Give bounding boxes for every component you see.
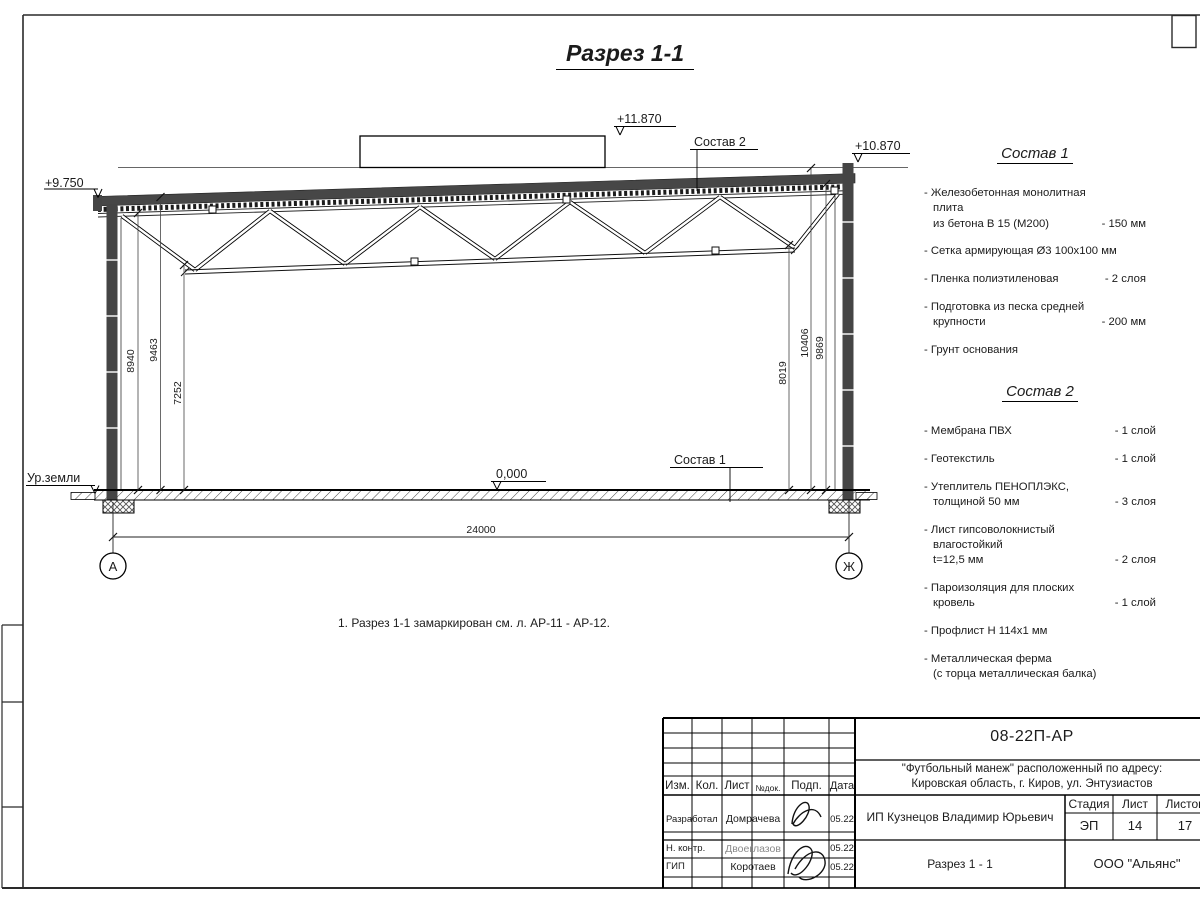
stamp-stage-value: ЭП [1065,818,1113,833]
sostav2-item: - Профлист Н 114х1 мм [924,624,1156,639]
item-name: - Пленка полиэтиленовая [924,272,1058,287]
axis-right-label: Ж [843,559,855,574]
sostav1-title: Состав 1 [924,145,1146,162]
item-value: - 3 слоя [1115,495,1156,510]
stamp-name-ncontr: Двоеглазов [722,843,784,855]
item-name: - Пароизоляция для плоских кровель [924,581,1109,612]
stamp-col-dok: №док. [752,783,784,793]
dim-right-1: 8019 [777,361,789,385]
stamp-role-developer: Разработал [666,814,718,825]
stamp-client: ИП Кузнецов Владимир Юрьевич [857,810,1063,824]
signature-1 [792,802,821,825]
stamp-sheets-value: 17 [1157,818,1200,833]
sostav2-title: Состав 2 [924,383,1156,400]
item-name: - Лист гипсоволокнистый влагостойкий t=1… [924,523,1109,569]
item-name: - Грунт основания [924,343,1018,358]
leader-lines [670,150,763,503]
stamp-col-data: Дата [829,780,855,792]
item-value: - 2 слоя [1105,272,1146,287]
leader-sostav2-label: Состав 2 [694,135,746,149]
truss-bottom-chord [181,246,799,276]
sostav1-item: - Грунт основания [924,343,1146,358]
signature-2 [788,846,825,879]
sostav1-item: - Сетка армирующая Ø3 100x100 мм [924,244,1146,259]
item-name: - Профлист Н 114х1 мм [924,624,1047,639]
drawing-sheet: +9.750 +11.870 +10.870 0,000 Ур.земли Со… [0,0,1200,900]
stamp-name-developer: Домрачева [722,813,784,825]
sostav2-item: - Геотекстиль- 1 слой [924,452,1156,467]
item-name: - Металлическая ферма (с торца металличе… [924,652,1096,683]
item-name: - Геотекстиль [924,452,997,467]
item-value: - 1 слой [1115,596,1156,611]
stamp-col-izm: Изм. [663,780,692,792]
dim-ticks [109,164,853,541]
stamp-date-gip: 05.22 [829,862,855,873]
stamp-col-podp: Подп. [784,780,829,792]
floor-slab [71,490,877,513]
stamp-sheets-label: Листов [1157,797,1200,811]
stamp-company: ООО "Альянс" [1067,856,1200,871]
item-value: - 2 слоя [1115,553,1156,568]
sostav2-item: - Металлическая ферма (с торца металличе… [924,652,1156,683]
stamp-role-ncontr: Н. контр. [666,843,705,854]
sostav1-panel: Состав 1 - Железобетонная монолитная пли… [924,145,1146,358]
item-value: - 1 слой [1115,424,1156,439]
dim-left-1: 8940 [125,349,137,373]
stamp-date-developer: 05.22 [829,814,855,825]
dim-right-2: 10406 [799,328,811,357]
item-value: - 200 мм [1102,315,1146,330]
item-name: - Сетка армирующая Ø3 100x100 мм [924,244,1117,259]
elevation-roof-right-label: +10.870 [855,139,901,153]
sostav1-item: - Подготовка из песка средней крупности-… [924,300,1146,331]
stamp-date-ncontr: 05.22 [829,843,855,854]
dim-left-3: 7252 [172,381,184,405]
rooftop-unit [360,136,605,168]
sostav2-item: - Лист гипсоволокнистый влагостойкий t=1… [924,523,1156,569]
elevation-floor-label: 0,000 [496,467,527,481]
elevation-parapet-label: +11.870 [617,112,662,126]
axis-left-label: А [109,559,118,574]
stamp-col-list: Лист [722,780,752,792]
dim-right-3: 9869 [814,336,826,360]
sostav1-item: - Пленка полиэтиленовая- 2 слоя [924,272,1146,287]
stamp-doc-number: 08-22П-АР [857,728,1200,746]
stamp-stage-label: Стадия [1065,797,1113,811]
item-name: - Железобетонная монолитная плита из бет… [924,186,1096,232]
signature-strokes [788,802,825,879]
item-value: - 1 слой [1115,452,1156,467]
item-name: - Подготовка из песка средней крупности [924,300,1084,331]
dim-left-2: 9463 [148,338,160,362]
dim-span: 24000 [466,524,495,536]
note-text: 1. Разрез 1-1 замаркирован см. л. АР-11 … [338,616,610,630]
sostav2-item: - Мембрана ПВХ- 1 слой [924,424,1156,439]
elevation-roof-left-label: +9.750 [45,176,84,190]
vertical-dim-lines [138,168,826,490]
stamp-col-kol: Кол. [692,780,722,792]
stamp-role-gip: ГИП [666,861,685,872]
item-value: - 150 мм [1102,217,1146,232]
leader-sostav1-label: Состав 1 [674,453,726,467]
stamp-name-gip: Коротаев [722,861,784,873]
stamp-sheet-value: 14 [1113,818,1157,833]
sostav2-item: - Пароизоляция для плоских кровель- 1 сл… [924,581,1156,612]
stamp-project: "Футбольный манеж" расположенный по адре… [857,762,1200,792]
sostav2-panel: Состав 2 - Мембрана ПВХ- 1 слой - Геотек… [924,383,1156,682]
sostav1-item: - Железобетонная монолитная плита из бет… [924,186,1146,232]
ground-level-label: Ур.земли [27,471,80,485]
stamp-sheet-label: Лист [1113,797,1157,811]
sostav2-item: - Утеплитель ПЕНОПЛЭКС, толщиной 50 мм- … [924,480,1156,511]
item-name: - Мембрана ПВХ [924,424,1012,439]
item-name: - Утеплитель ПЕНОПЛЭКС, толщиной 50 мм [924,480,1069,511]
stamp-sheet-title: Разрез 1 - 1 [857,857,1063,871]
drawing-title: Разрез 1-1 [556,40,694,70]
